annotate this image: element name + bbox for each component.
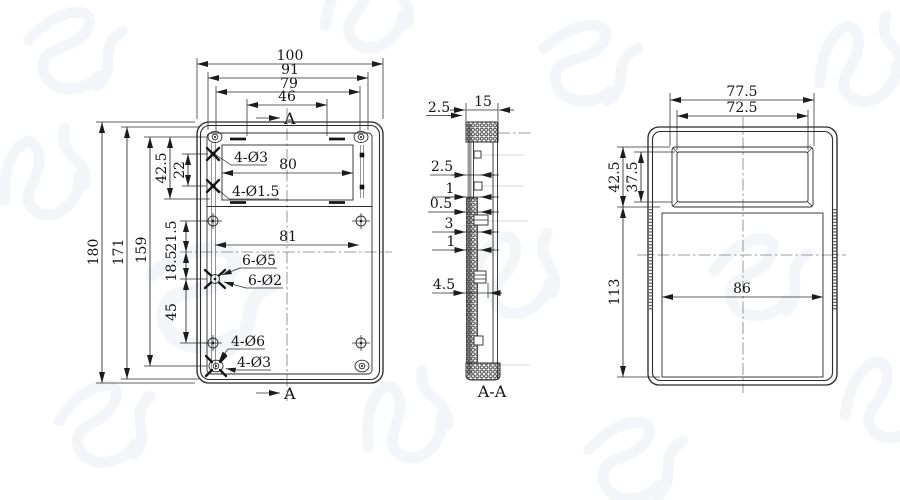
side-window-outer [672,147,813,207]
label-bottom-boss: 4-Ø3 [237,355,271,371]
dim-pad-spacing: 22 [172,161,188,179]
dim-inner-height: 171 [111,239,127,266]
side-rib-left [649,209,652,310]
label-small-holes: 4-Ø1.5 [232,184,279,200]
label-mid-boss-od: 6-Ø5 [242,253,276,269]
section-depth-dimension: 15 [450,94,514,121]
dim-step-3: 0.5 [430,196,452,212]
dim-boss-depth: 4.5 [433,277,455,293]
section-step-dimensions: 2.5 1 0.5 3 1 [428,159,499,250]
label-bottom-holes: 4-Ø6 [231,334,265,350]
side-rib-right [833,209,836,310]
drawing-canvas: 4-Ø3 4-Ø1.5 6-Ø5 6-Ø2 4-Ø6 4-Ø3 100 91 [0,0,900,500]
dim-window-offset: 42.5 [154,152,170,183]
dim-slot-width: 46 [278,89,296,105]
dim-hole-span: 81 [279,229,297,245]
dim-panel-width: 86 [733,281,751,297]
label-mid-boss-id: 6-Ø2 [248,273,282,289]
section-bottom-cap [466,363,500,380]
dim-overall-height: 180 [86,239,102,266]
section-marker-top: A [283,109,296,128]
section-top-wall-dimension: 2.5 [426,100,462,116]
dim-body-height: 113 [607,279,623,306]
side-left-dimensions: 42.5 37.5 113 [607,147,675,377]
dim-window-outer-height: 42.5 [607,161,623,192]
dim-step-2: 1 [446,181,455,197]
front-view: 4-Ø3 4-Ø1.5 6-Ø5 6-Ø2 4-Ø6 4-Ø3 100 91 [86,48,392,403]
section-title: A-A [477,382,507,401]
side-window-inner [677,152,808,202]
dim-window-inner-width: 72.5 [726,100,757,116]
side-window-bevels [673,148,812,206]
dim-step-1: 2.5 [431,159,453,175]
dim-lower-span: 45 [164,303,180,321]
label-corner-holes: 4-Ø3 [234,150,268,166]
drawing-sheet: 4-Ø3 4-Ø1.5 6-Ø5 6-Ø2 4-Ø6 4-Ø3 100 91 [0,0,900,500]
dim-mid-upper: 21.5 [164,220,180,251]
section-top-cap [466,122,498,142]
dim-window-inner-height: 37.5 [625,161,641,192]
side-view: 77.5 72.5 42.5 37.5 113 86 [607,84,846,393]
dim-mid-lower: 18.5 [164,250,180,281]
dim-step-4: 3 [445,216,454,232]
side-top-dimensions: 77.5 72.5 [670,84,814,150]
dim-step-5: 1 [447,234,456,250]
dim-depth: 15 [474,94,492,110]
section-marker-bottom: A [283,384,296,403]
dim-top-wall: 2.5 [428,100,450,116]
dim-window-outer-width: 77.5 [726,84,757,100]
dim-boss-height: 159 [134,237,150,264]
dim-window-width: 80 [279,157,297,173]
